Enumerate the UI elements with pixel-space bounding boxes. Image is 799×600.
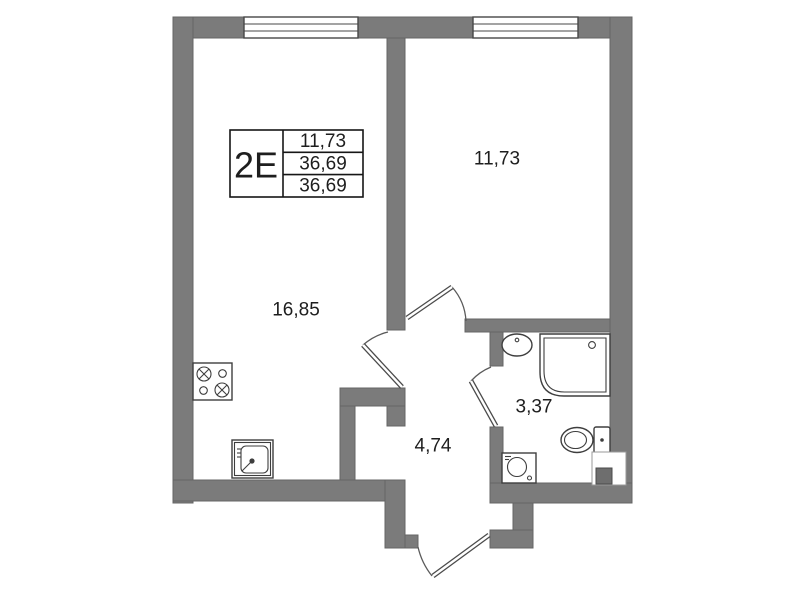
- bathroom-door-icon: [471, 367, 496, 426]
- vent-shaft-icon: [592, 452, 626, 485]
- entrance-door-icon: [418, 535, 489, 576]
- washbasin-icon: [502, 334, 532, 357]
- room-area-label-hallway: 4,74: [415, 436, 452, 457]
- kitchen-sink-icon: [232, 440, 273, 478]
- room-area-label-living: 16,85: [272, 300, 320, 321]
- room-area-label-bedroom: 11,73: [474, 149, 520, 170]
- wall-segment-room-divider: [387, 38, 405, 330]
- wall-segment-entry-riser: [513, 501, 533, 530]
- wall-segment-entry-right-jamb: [490, 530, 533, 548]
- wall-segment-niche-stub: [387, 406, 405, 426]
- floor-plan-svg: 2E 11,73 36,69 36,69 11,73 16,85 4,74 3,…: [0, 0, 799, 600]
- window-icon-left: [244, 17, 358, 38]
- unit-info-box: 2E 11,73 36,69 36,69: [230, 130, 363, 197]
- wall-segment-niche-top: [340, 388, 405, 406]
- washing-machine-icon: [502, 453, 536, 483]
- bedroom-door-icon: [407, 287, 466, 321]
- wall-segment-bottom-left: [173, 480, 405, 501]
- info-box-row-3: 36,69: [299, 176, 347, 197]
- wall-segment-niche-left: [340, 406, 355, 480]
- living-room-door-icon: [363, 332, 402, 387]
- wall-segment-bath-top: [465, 319, 610, 332]
- shower-icon: [540, 334, 610, 396]
- window-icon-right: [473, 17, 578, 38]
- toilet-icon: [561, 427, 610, 453]
- stove-icon: [193, 363, 232, 400]
- wall-segment-bath-left-upper: [490, 332, 503, 366]
- wall-segment-entry-left-jamb: [405, 535, 418, 548]
- wall-segment-entry-left: [385, 480, 405, 548]
- info-box-row-1: 11,73: [300, 131, 346, 152]
- wall-segment-right: [610, 17, 632, 503]
- unit-label: 2E: [234, 145, 278, 186]
- kitchen-fixtures: [193, 363, 273, 478]
- wall-segment-bath-bottom: [490, 483, 632, 503]
- info-box-row-2: 36,69: [299, 153, 347, 174]
- wall-segment-bath-left-lower: [490, 427, 503, 483]
- wall-segment-left: [173, 17, 193, 503]
- room-area-label-bathroom: 3,37: [516, 397, 553, 418]
- floor-plan: 2E 11,73 36,69 36,69 11,73 16,85 4,74 3,…: [0, 0, 799, 600]
